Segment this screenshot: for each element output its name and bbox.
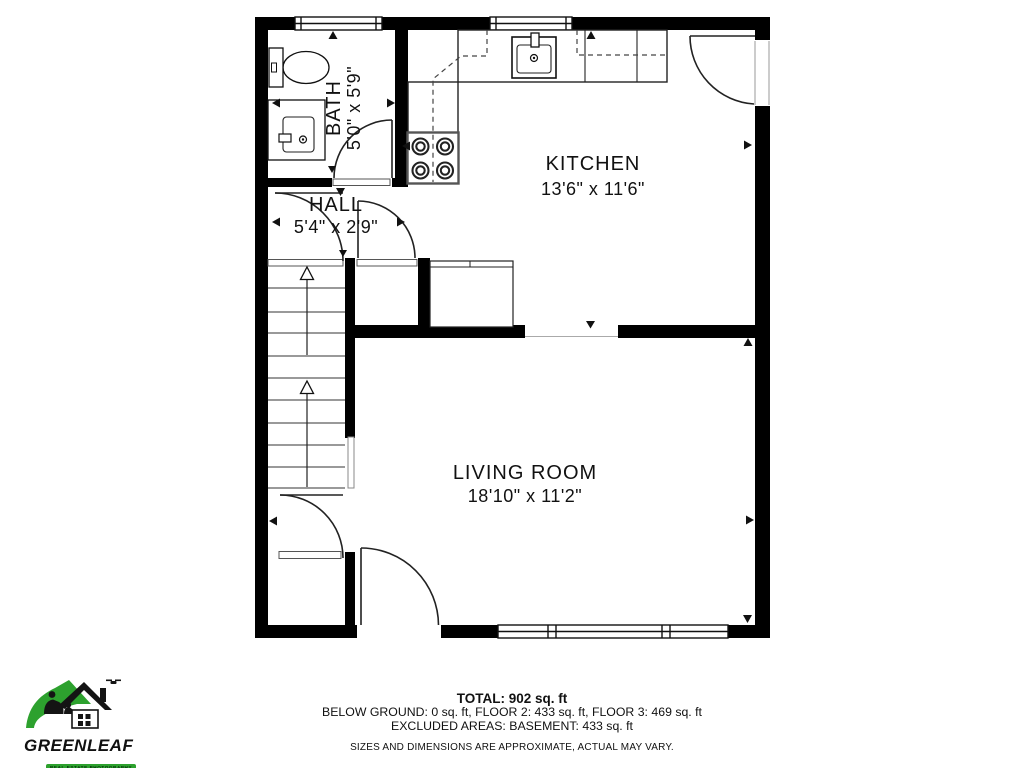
marker-down-icon xyxy=(586,321,595,329)
up-arrow-icon xyxy=(301,381,314,394)
storage-door xyxy=(280,495,343,558)
marker-down-icon xyxy=(339,250,347,257)
kitchen-counter-left xyxy=(408,82,458,133)
marker-right-icon xyxy=(387,99,395,108)
room-dims: 13'6" x 11'6" xyxy=(541,179,645,199)
room-name: BATH xyxy=(323,80,345,136)
faucet-icon xyxy=(531,33,539,47)
marker-up-icon xyxy=(329,31,338,39)
wall-right xyxy=(755,17,770,638)
disclaimer-text: SIZES AND DIMENSIONS ARE APPROXIMATE, AC… xyxy=(0,742,1024,753)
marker-left-icon xyxy=(269,517,277,526)
excluded-areas-text: EXCLUDED AREAS: BASEMENT: 433 sq. ft xyxy=(0,720,1024,734)
floor-areas-text: BELOW GROUND: 0 sq. ft, FLOOR 2: 433 sq.… xyxy=(0,706,1024,720)
marker-down-icon xyxy=(743,615,752,623)
toilet xyxy=(269,48,329,87)
wall-alcove-right xyxy=(345,552,355,638)
threshold-storage xyxy=(279,552,341,559)
window-kitchen-top xyxy=(490,17,572,30)
kitchen-sink xyxy=(512,33,556,78)
window-bath-top xyxy=(295,17,382,30)
up-arrow-icon xyxy=(301,267,314,280)
drone-icon xyxy=(106,680,121,685)
room-dims: 18'10" x 11'2" xyxy=(468,486,582,506)
room-name: KITCHEN xyxy=(546,153,641,175)
total-area-text: TOTAL: 902 sq. ft xyxy=(0,691,1024,706)
hall-cabinet xyxy=(430,261,513,327)
window-living-bottom xyxy=(498,625,728,638)
living-room-label: LIVING ROOM 18'10" x 11'2" xyxy=(453,462,597,506)
staircase xyxy=(268,267,354,488)
bath-label: BATH 5'0" x 5'9" xyxy=(323,66,364,150)
floor-plan-drawing: BATH 5'0" x 5'9" HALL 5'4" x 2'9" KITCHE… xyxy=(0,0,1024,768)
room-name: LIVING ROOM xyxy=(453,462,597,484)
room-dims: 5'0" x 5'9" xyxy=(344,66,364,150)
wall-left xyxy=(255,17,268,638)
entry-opening xyxy=(754,40,771,106)
wall-closet-right xyxy=(418,258,430,330)
kitchen-label: KITCHEN 13'6" x 11'6" xyxy=(541,153,645,199)
marker-right-icon xyxy=(746,516,754,525)
living-room-exterior-door xyxy=(361,548,439,625)
wall-divider-right xyxy=(618,325,755,338)
marker-up-icon xyxy=(744,338,753,346)
threshold-stairs xyxy=(268,260,343,267)
entry-door xyxy=(690,36,755,104)
marker-left-icon xyxy=(272,218,280,227)
bath-vanity-sink xyxy=(268,100,325,160)
threshold-hall-closet xyxy=(357,260,417,267)
floor-plan-page: BATH 5'0" x 5'9" HALL 5'4" x 2'9" KITCHE… xyxy=(0,0,1024,768)
kitchen-counter-top xyxy=(458,30,667,82)
brand-tagline: REAL ESTATE PHOTOGRAPHY xyxy=(46,764,136,768)
stove xyxy=(408,133,459,184)
area-summary: TOTAL: 902 sq. ft BELOW GROUND: 0 sq. ft… xyxy=(0,691,1024,753)
threshold-bath xyxy=(333,179,390,186)
wall-stair xyxy=(345,258,355,438)
room-name: HALL xyxy=(309,194,363,216)
wall-bath-right xyxy=(395,30,408,187)
stair-railing xyxy=(348,437,354,488)
bottom-door-opening xyxy=(357,624,441,639)
faucet-icon xyxy=(279,134,291,142)
stair-direction-arrows xyxy=(301,267,314,487)
marker-right-icon xyxy=(744,141,752,150)
room-dims: 5'4" x 2'9" xyxy=(294,217,378,237)
